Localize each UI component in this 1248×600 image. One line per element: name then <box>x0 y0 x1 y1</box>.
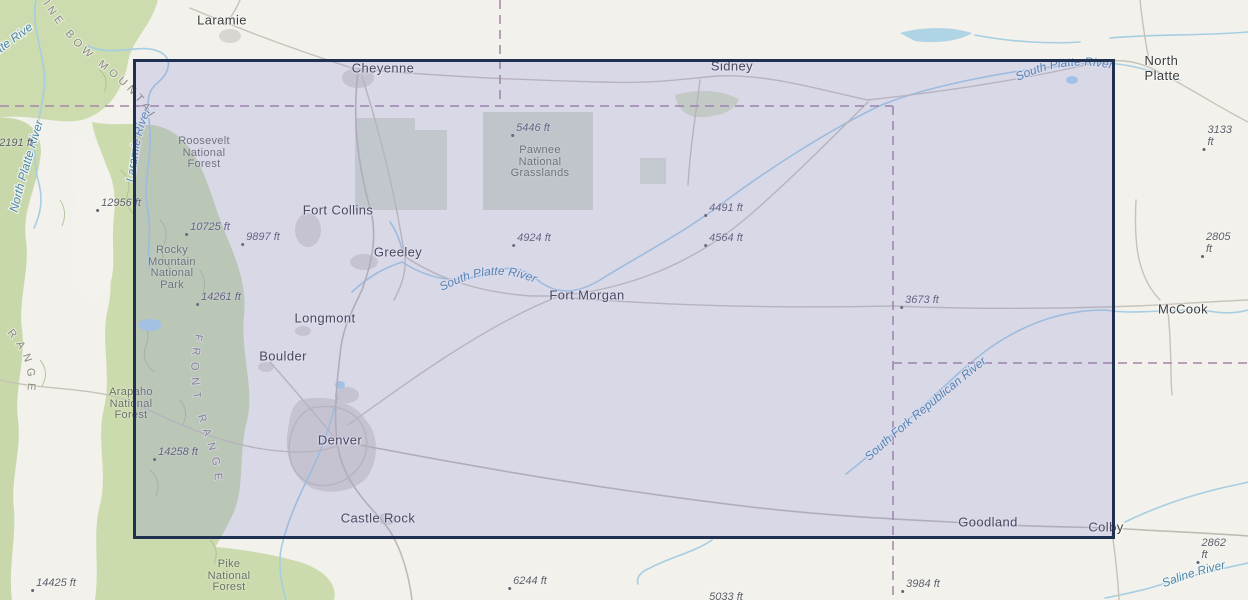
elevation-label: 5033 ft <box>709 591 743 600</box>
elevation-label: 6244 ft <box>513 575 547 587</box>
elevation-marker-dot <box>508 587 511 590</box>
elevation-label: 2191 ft <box>0 137 33 149</box>
elevation-label: 3984 ft <box>906 578 940 590</box>
elevation-marker-dot <box>1203 148 1206 151</box>
map-canvas[interactable]: Laramie River North Platte River North P… <box>0 0 1248 600</box>
elevation-label: 2805 ft <box>1206 231 1234 255</box>
selection-extent-rectangle[interactable] <box>133 59 1115 539</box>
protected-area-label: Pike National Forest <box>208 559 251 594</box>
elevation-label: 14425 ft <box>36 577 76 589</box>
city-label: Laramie <box>197 13 247 28</box>
city-label: North Platte <box>1145 53 1214 83</box>
elevation-marker-dot <box>96 209 99 212</box>
elevation-marker-dot <box>901 590 904 593</box>
elevation-label: 2862 ft <box>1202 537 1233 561</box>
elevation-marker-dot <box>1197 561 1200 564</box>
elevation-marker-dot <box>1201 255 1204 258</box>
elevation-label: 3133 ft <box>1208 124 1235 148</box>
elevation-marker-dot <box>31 589 34 592</box>
city-label: McCook <box>1158 302 1208 317</box>
